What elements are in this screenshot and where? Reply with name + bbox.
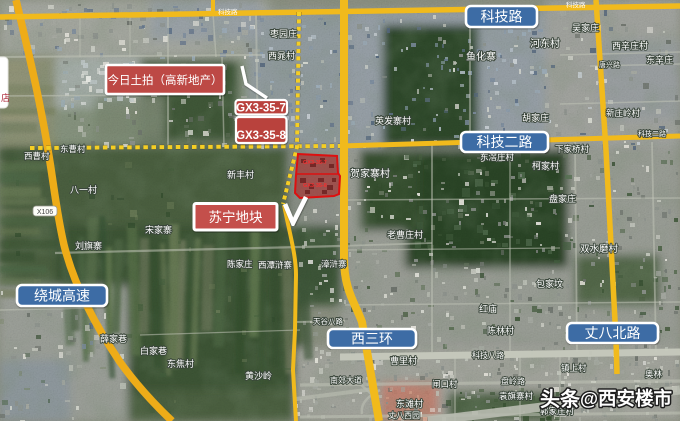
- svg-text:盘家庄: 盘家庄: [549, 193, 576, 204]
- svg-text:柯家村: 柯家村: [532, 160, 559, 171]
- svg-text:闸口村: 闸口村: [432, 379, 458, 389]
- svg-text:白家巷: 白家巷: [140, 345, 167, 356]
- svg-text:刘旗寨: 刘旗寨: [75, 240, 102, 251]
- svg-text:GX3-35-8: GX3-35-8: [303, 183, 327, 189]
- svg-text:X106: X106: [37, 209, 53, 216]
- svg-text:科技二路: 科技二路: [638, 129, 666, 138]
- svg-text:漳浒寨: 漳浒寨: [321, 259, 347, 269]
- svg-text:包家坟: 包家坟: [536, 278, 563, 289]
- svg-text:陈林村: 陈林村: [487, 325, 514, 336]
- svg-text:奥林: 奥林: [645, 369, 663, 379]
- svg-text:西晁村: 西晁村: [268, 50, 295, 61]
- svg-text:GX3-35-7: GX3-35-7: [303, 160, 327, 166]
- svg-text:科技路: 科技路: [218, 7, 238, 16]
- svg-text:GX3-35-7: GX3-35-7: [236, 103, 286, 115]
- svg-text:双水磨村: 双水磨村: [580, 243, 619, 255]
- svg-text:南郊大道: 南郊大道: [330, 375, 362, 385]
- svg-text:丈八北路: 丈八北路: [585, 325, 641, 341]
- svg-text:镇上村: 镇上村: [561, 363, 587, 373]
- svg-text:东滘庄村: 东滘庄村: [480, 152, 515, 162]
- svg-text:曹里村: 曹里村: [390, 355, 417, 366]
- svg-text:东辛庄: 东辛庄: [646, 54, 673, 65]
- svg-text:胡家庄: 胡家庄: [522, 112, 549, 123]
- svg-text:苏宁地块: 苏宁地块: [209, 209, 263, 225]
- svg-text:黄沙岭: 黄沙岭: [245, 370, 272, 381]
- svg-text:八一村: 八一村: [70, 184, 97, 195]
- svg-text:唐兴路: 唐兴路: [599, 60, 620, 69]
- svg-text:科技二路: 科技二路: [477, 134, 533, 150]
- svg-text:科技八路: 科技八路: [472, 350, 504, 360]
- svg-text:老曹庄村: 老曹庄村: [387, 229, 423, 240]
- svg-text:西辛庄村: 西辛庄村: [612, 40, 648, 51]
- svg-text:英发寨村: 英发寨村: [375, 115, 411, 126]
- svg-text:东曹村: 东曹村: [60, 144, 86, 154]
- svg-text:薛家巷: 薛家巷: [100, 333, 127, 344]
- svg-text:陈家庄: 陈家庄: [227, 259, 253, 269]
- svg-text:店: 店: [1, 92, 10, 103]
- svg-text:东焦村: 东焦村: [167, 358, 194, 369]
- svg-text:吴家庄: 吴家庄: [572, 22, 599, 33]
- svg-text:绕城高速: 绕城高速: [34, 288, 90, 304]
- svg-text:GX3-35-8: GX3-35-8: [236, 130, 286, 142]
- svg-text:贺家寨村: 贺家寨村: [350, 167, 390, 180]
- svg-text:宋家寨: 宋家寨: [145, 224, 172, 235]
- svg-text:下家桥村: 下家桥村: [555, 144, 590, 154]
- svg-text:袁旗寨村: 袁旗寨村: [499, 391, 534, 401]
- svg-text:西三环: 西三环: [351, 331, 393, 347]
- svg-text:红庙: 红庙: [479, 303, 497, 314]
- svg-text:科技路: 科技路: [481, 9, 523, 25]
- svg-text:西潭浒寨: 西潭浒寨: [258, 260, 293, 270]
- svg-text:鱼化寨: 鱼化寨: [466, 50, 496, 63]
- svg-text:新丰村: 新丰村: [227, 169, 254, 180]
- svg-text:今日土拍（高新地产）: 今日土拍（高新地产）: [108, 73, 223, 87]
- svg-text:新庄岭村: 新庄岭村: [606, 108, 641, 118]
- svg-text:头条: 头条: [540, 387, 581, 411]
- svg-text:河东村: 河东村: [530, 37, 560, 50]
- svg-text:天谷八路: 天谷八路: [313, 316, 343, 326]
- svg-text:科技路: 科技路: [566, 0, 586, 9]
- svg-text:@西安楼市: @西安楼市: [580, 388, 672, 409]
- svg-text:盘岭路: 盘岭路: [501, 376, 525, 386]
- svg-text:枣园庄: 枣园庄: [270, 28, 297, 39]
- svg-text:丈八西园: 丈八西园: [388, 410, 420, 420]
- svg-text:西曹村: 西曹村: [24, 151, 50, 161]
- svg-text:东滩村: 东滩村: [396, 398, 423, 409]
